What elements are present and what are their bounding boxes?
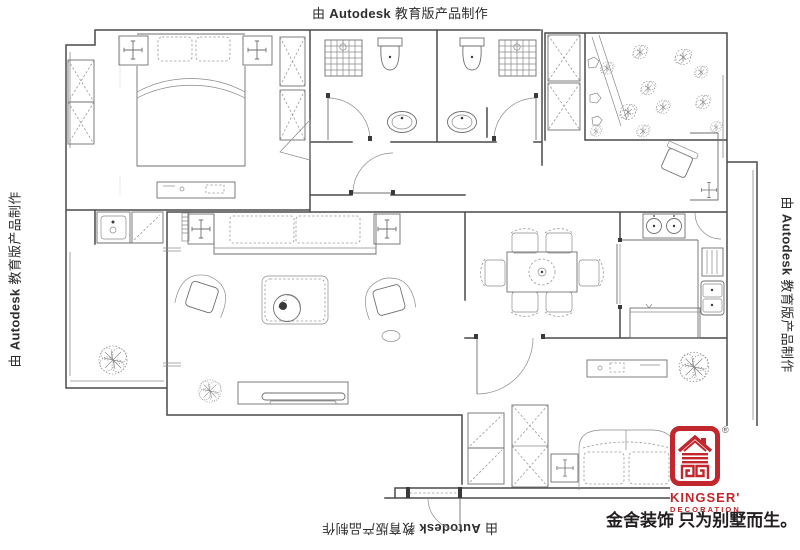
island [630,304,700,338]
door-arc [494,98,536,140]
tv [262,393,345,400]
pillow [158,37,192,61]
armchair [174,269,232,318]
ceiling-lamp-icon [557,460,573,476]
kingser-name: KINGSER' [670,491,776,504]
ceiling-lamp-icon [378,220,396,238]
plant [679,352,708,381]
rug [262,276,328,324]
plant [633,45,648,59]
pillow [196,37,230,61]
toilet [378,38,402,70]
bed [579,430,674,490]
nightstand [243,36,272,65]
ceiling-lamp-icon [192,220,210,238]
stove [643,214,685,238]
terrace [548,35,722,200]
dining-chair [511,292,539,317]
door-arc [477,338,533,394]
dining-room [481,229,604,317]
plant [600,62,614,74]
basin [448,112,477,133]
dresser [157,182,235,198]
wardrobe [468,413,504,484]
bathroom-2 [448,38,539,141]
plant [641,81,656,95]
plant [636,125,650,137]
dining-chair [545,229,573,254]
ceiling-lamp-icon [124,41,142,59]
rocks [588,57,602,125]
plant [694,66,708,78]
dining-chair [579,259,604,287]
plant [99,346,127,374]
chair [658,141,699,180]
plant [696,95,711,109]
corridor-door [349,153,395,195]
kingser-logo: ® KINGSER' DECORATION [670,426,776,514]
door-arc [695,213,721,239]
dining-chair [545,292,573,317]
wardrobe [280,37,305,140]
coffee-table [274,295,301,322]
pillow [629,452,669,484]
wardrobe [68,60,94,144]
ceiling-lamp-icon [248,41,266,59]
plant [675,50,692,65]
wardrobe [548,35,580,130]
dresser [587,360,667,377]
walls [66,30,757,498]
pillow [584,452,624,484]
floorplan-page: { "watermark": { "prefix": "由", "brand":… [0,0,800,550]
plant [590,126,602,137]
plant [656,101,670,114]
plant [710,122,722,133]
basin [388,112,417,133]
kingser-emblem-icon [670,426,720,488]
counter [622,240,698,338]
dining-chair [511,229,539,254]
kitchen-sink [701,281,724,315]
dining-chair [481,259,506,287]
bathroom-1 [325,38,417,141]
master-bedroom [68,34,310,198]
wardrobe [512,405,548,487]
balcony [97,212,163,374]
armchair [360,272,417,319]
door-arc [328,98,370,140]
kitchen [617,213,724,338]
registered-mark: ® [722,426,729,435]
living-room [163,213,416,404]
ceiling-lamp-icon [701,182,716,197]
plant [199,380,221,402]
footstool [382,331,400,342]
toilet [460,38,484,70]
bed [137,66,245,166]
brand-slogan: 金舍装饰 只为别墅而生。 [606,506,797,531]
entry-door [406,487,462,530]
dish-rack [702,248,723,276]
nightstand [119,36,148,65]
deck-lines [592,35,627,126]
